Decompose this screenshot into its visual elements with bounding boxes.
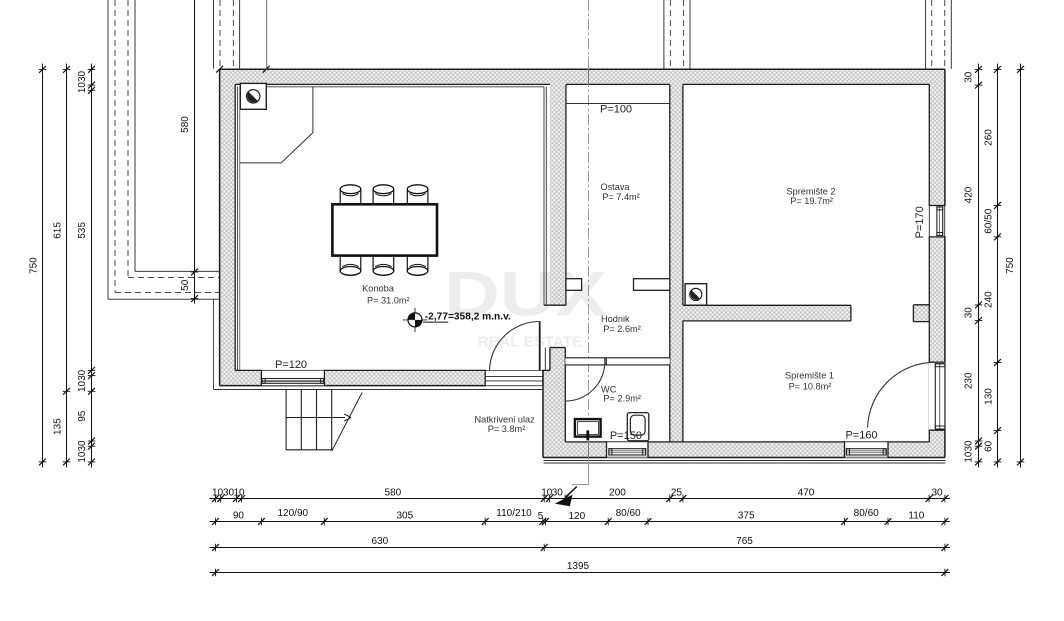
svg-text:P= 10.8m²: P= 10.8m² <box>789 382 832 392</box>
svg-text:30: 30 <box>552 487 564 498</box>
svg-text:580: 580 <box>180 116 191 133</box>
svg-text:1030: 1030 <box>77 440 88 463</box>
svg-text:30: 30 <box>931 487 943 498</box>
svg-text:80/60: 80/60 <box>854 508 879 519</box>
svg-text:60/50: 60/50 <box>984 208 995 233</box>
svg-text:Konoba: Konoba <box>362 284 395 294</box>
svg-text:10: 10 <box>233 487 245 498</box>
svg-text:120: 120 <box>568 511 585 522</box>
svg-text:630: 630 <box>371 536 388 547</box>
svg-text:305: 305 <box>396 510 413 521</box>
svg-text:1030: 1030 <box>77 369 88 392</box>
svg-text:120/90: 120/90 <box>278 508 309 519</box>
svg-text:50: 50 <box>180 279 191 291</box>
svg-text:615: 615 <box>53 222 64 239</box>
svg-text:135: 135 <box>53 418 64 435</box>
svg-text:200: 200 <box>609 487 626 498</box>
svg-text:240: 240 <box>984 291 995 308</box>
svg-text:P=150: P=150 <box>610 430 642 442</box>
svg-text:P=120: P=120 <box>275 359 307 371</box>
svg-text:90: 90 <box>233 510 245 521</box>
svg-text:765: 765 <box>736 536 753 547</box>
svg-text:5: 5 <box>538 511 544 522</box>
svg-text:230: 230 <box>963 372 974 389</box>
svg-text:P= 2.9m²: P= 2.9m² <box>603 393 641 403</box>
svg-text:P=100: P=100 <box>600 103 632 115</box>
svg-text:Ostava: Ostava <box>600 182 630 192</box>
svg-text:30: 30 <box>963 71 974 83</box>
svg-text:95: 95 <box>77 410 88 422</box>
svg-text:Hodnik: Hodnik <box>601 314 630 324</box>
svg-text:750: 750 <box>1005 257 1016 274</box>
svg-text:580: 580 <box>385 487 402 498</box>
svg-text:25: 25 <box>671 487 683 498</box>
svg-text:750: 750 <box>29 257 40 274</box>
svg-text:P= 19.7m²: P= 19.7m² <box>790 196 833 206</box>
svg-text:-2,77=358,2 m.n.v.: -2,77=358,2 m.n.v. <box>425 312 511 323</box>
svg-text:375: 375 <box>738 510 755 521</box>
svg-text:Natkriveni ulaz: Natkriveni ulaz <box>474 414 535 424</box>
svg-text:1030: 1030 <box>963 440 974 463</box>
svg-text:Spremište 2: Spremište 2 <box>786 186 835 196</box>
svg-text:P= 7.4m²: P= 7.4m² <box>602 192 640 202</box>
svg-text:10: 10 <box>212 487 224 498</box>
svg-text:P= 31.0m²: P= 31.0m² <box>367 295 410 305</box>
svg-text:535: 535 <box>77 222 88 239</box>
svg-text:REAL ESTATE: REAL ESTATE <box>478 334 583 351</box>
svg-text:260: 260 <box>984 129 995 146</box>
svg-text:110/210: 110/210 <box>496 508 532 519</box>
svg-text:30: 30 <box>963 307 974 319</box>
svg-text:Spremište 1: Spremište 1 <box>785 371 834 381</box>
svg-text:P=160: P=160 <box>845 430 877 442</box>
svg-text:P= 2.6m²: P= 2.6m² <box>603 324 641 334</box>
svg-text:60: 60 <box>984 440 995 452</box>
svg-text:P=170: P=170 <box>914 206 926 238</box>
svg-text:130: 130 <box>984 388 995 405</box>
svg-text:420: 420 <box>963 186 974 203</box>
svg-text:80/60: 80/60 <box>616 508 641 519</box>
svg-text:1030: 1030 <box>77 70 88 93</box>
svg-text:1395: 1395 <box>567 561 590 572</box>
svg-text:110: 110 <box>908 510 924 521</box>
svg-text:P= 3.8m²: P= 3.8m² <box>488 424 526 434</box>
svg-text:470: 470 <box>798 487 815 498</box>
